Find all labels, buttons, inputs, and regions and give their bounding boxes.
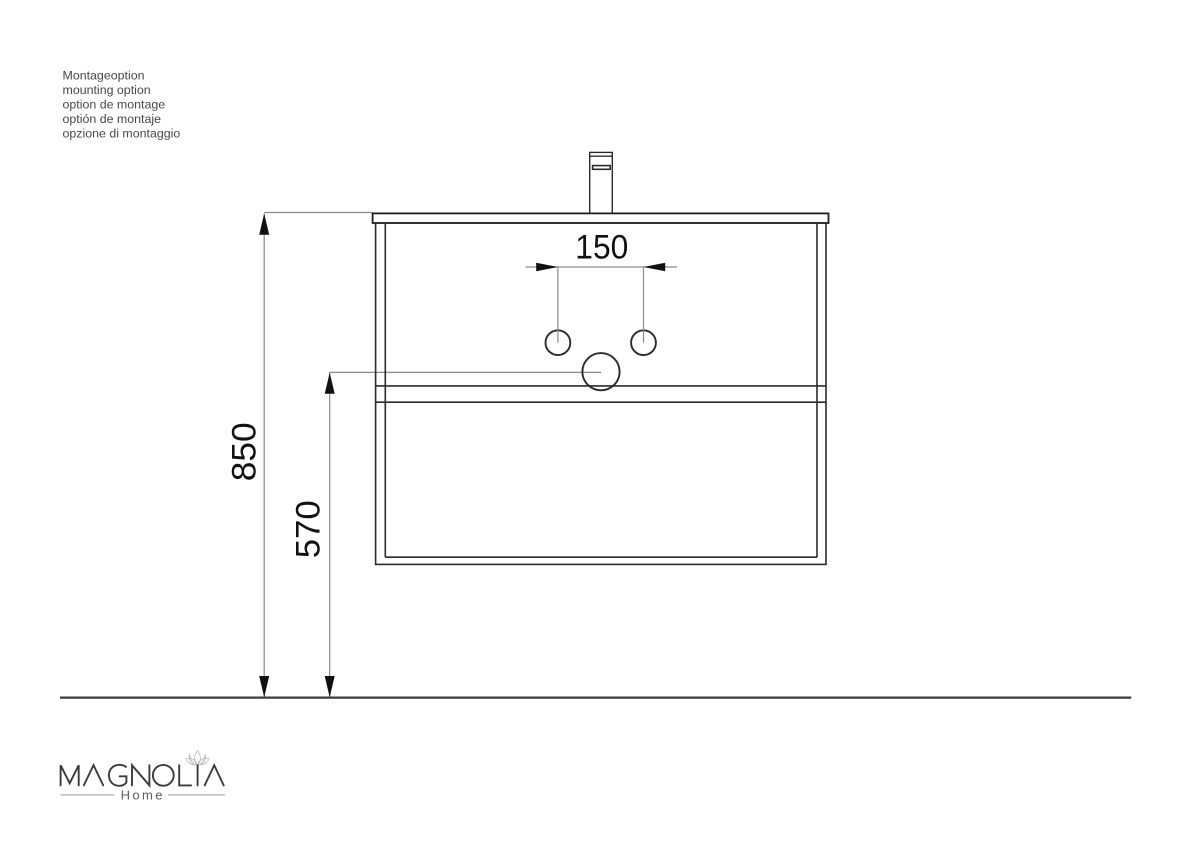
svg-text:850: 850	[225, 422, 263, 481]
svg-text:Home: Home	[121, 788, 165, 803]
svg-text:option de montage: option de montage	[63, 97, 166, 111]
svg-text:150: 150	[575, 228, 628, 266]
svg-text:570: 570	[289, 500, 327, 558]
svg-text:optión de montaje: optión de montaje	[63, 112, 162, 126]
svg-text:mounting option: mounting option	[63, 83, 151, 97]
svg-text:opzione di montaggio: opzione di montaggio	[63, 126, 181, 140]
svg-text:Montageoption: Montageoption	[63, 69, 145, 83]
